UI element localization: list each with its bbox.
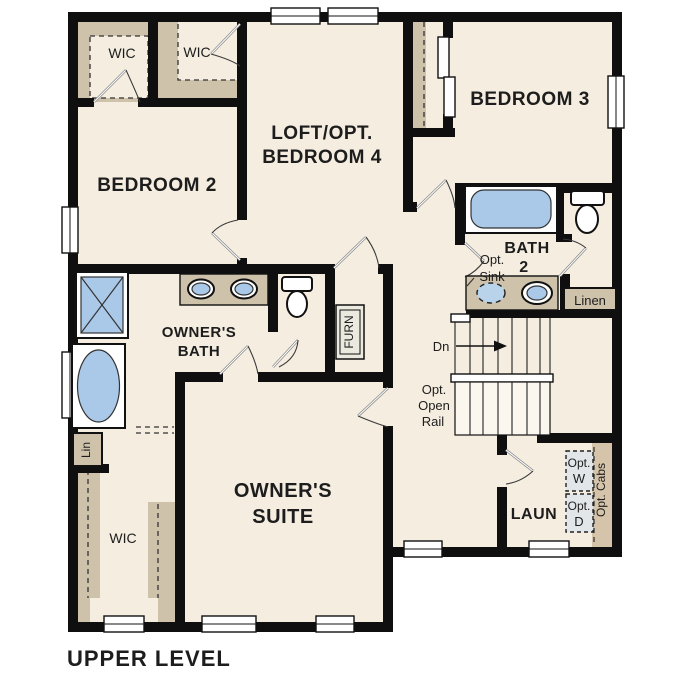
room-label-wic-top-mid: WIC [183, 44, 210, 60]
label-opt-dryer-line1: Opt. [568, 499, 591, 513]
room-label-wic-top-left: WIC [108, 45, 135, 61]
window [271, 8, 320, 24]
label-stair-down: Dn [433, 339, 450, 354]
stair-rail [451, 374, 553, 382]
label-linen: Linen [574, 293, 606, 308]
room-label-owners-bath-line2: BATH [178, 343, 221, 360]
room-label-owners-bath-line1: OWNER'S [162, 324, 237, 341]
stair-landing-cap [451, 314, 470, 322]
window [104, 616, 144, 632]
room-label-bedroom-2: BEDROOM 2 [97, 175, 217, 196]
optional-sink [477, 283, 505, 303]
room-label-owners-suite-line2: SUITE [252, 506, 313, 528]
window [328, 8, 378, 24]
room-label-bath-2-line1: BATH [504, 240, 549, 257]
label-opt-cabinets: Opt. Cabs [594, 463, 608, 517]
room-label-owners-suite-line1: OWNER'S [234, 480, 332, 502]
window [202, 616, 256, 632]
label-open-rail-line1: Opt. [422, 382, 447, 397]
label-opt-sink-line2: Sink [479, 269, 505, 284]
window [316, 616, 354, 632]
label-furnace: FURN [342, 315, 356, 348]
label-lin-closet: Lin [79, 442, 93, 458]
label-opt-washer-line1: Opt. [568, 456, 591, 470]
floor-plan-page: WIC WIC BEDROOM 2 LOFT/OPT. BEDROOM 4 BE… [0, 0, 687, 687]
vanity-owners [180, 274, 268, 305]
label-open-rail-line3: Rail [422, 414, 445, 429]
room-label-bath-2-line2: 2 [519, 259, 528, 276]
bathtub-bath-2 [465, 186, 557, 233]
window [404, 541, 442, 557]
window [62, 207, 78, 253]
label-opt-dryer-line2: D [574, 514, 583, 529]
bathtub-owners [72, 344, 125, 428]
label-opt-sink-line1: Opt. [480, 252, 505, 267]
room-label-laundry: LAUN [511, 506, 557, 523]
room-label-owners-wic: WIC [109, 530, 136, 546]
label-opt-washer-line2: W [573, 471, 586, 486]
label-open-rail-line2: Open [418, 398, 450, 413]
shower [76, 272, 128, 338]
window [529, 541, 569, 557]
room-label-loft-line2: BEDROOM 4 [262, 147, 382, 168]
stair-lower-run [455, 382, 550, 435]
plan-title: UPPER LEVEL [67, 646, 231, 671]
window [608, 76, 624, 128]
room-label-bedroom-3: BEDROOM 3 [470, 89, 590, 110]
room-label-loft-line1: LOFT/OPT. [271, 123, 373, 144]
floor-plan-drawing: WIC WIC BEDROOM 2 LOFT/OPT. BEDROOM 4 BE… [0, 0, 687, 687]
